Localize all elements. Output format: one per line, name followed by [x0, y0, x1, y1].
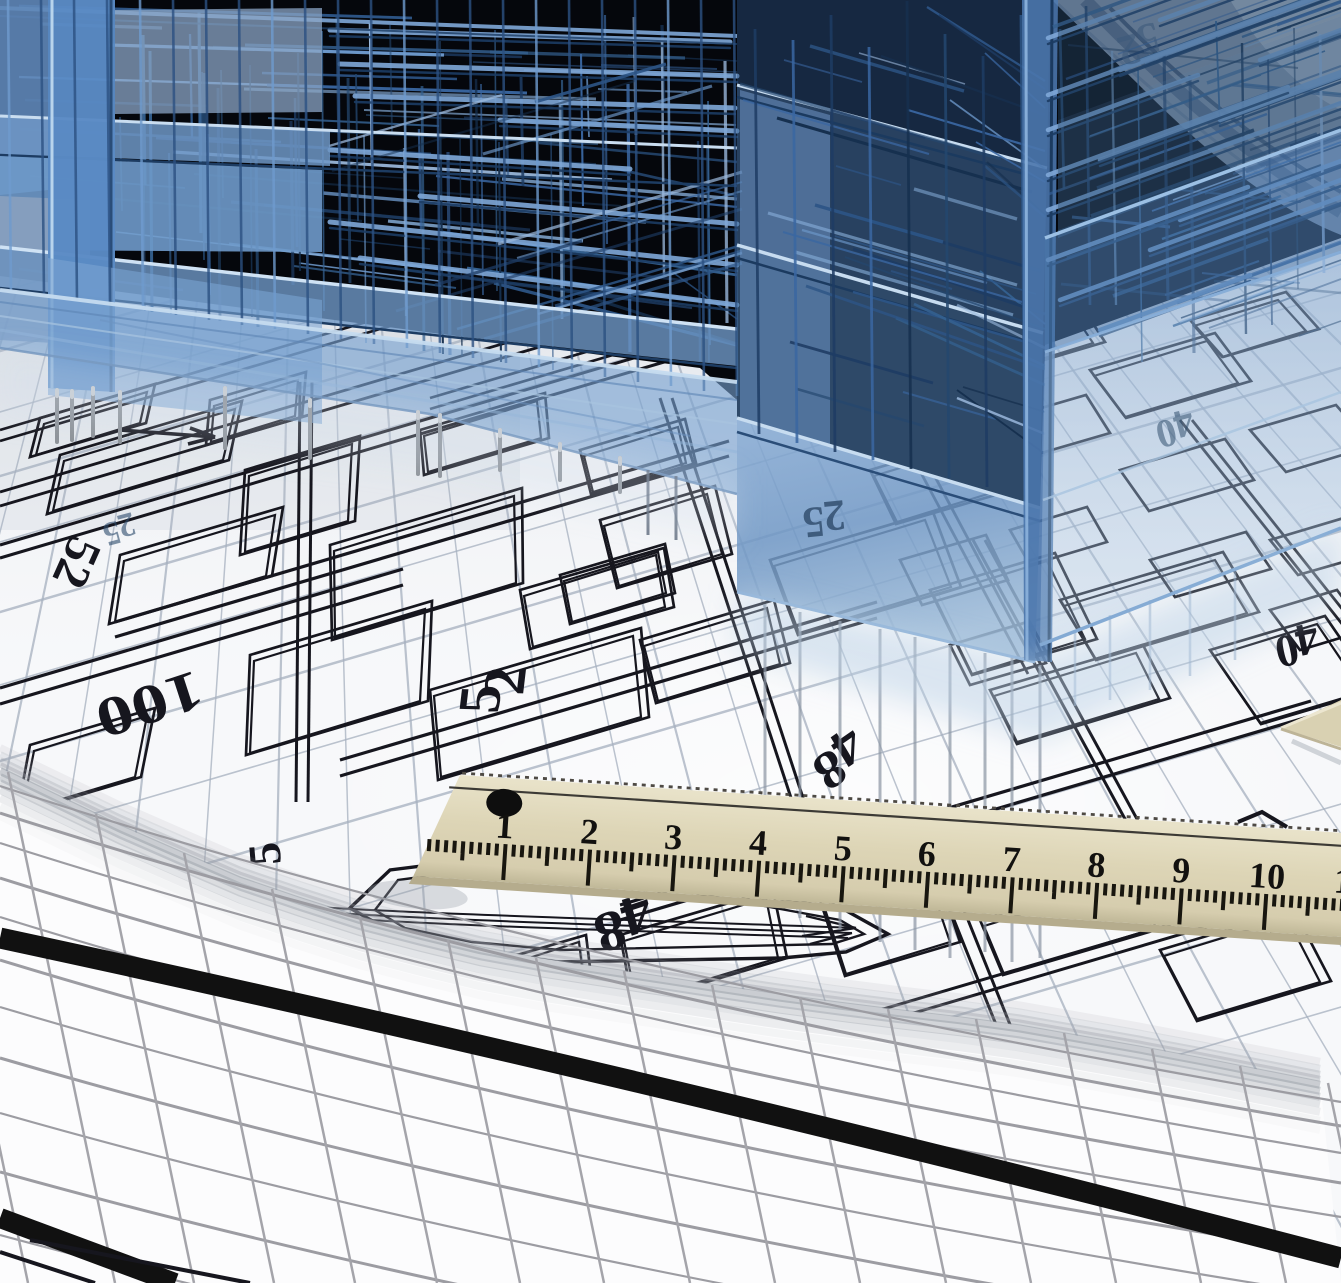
svg-text:6: 6	[917, 833, 938, 874]
svg-text:2: 2	[579, 811, 600, 852]
svg-text:4: 4	[748, 822, 769, 863]
svg-text:3: 3	[663, 817, 684, 858]
svg-text:7: 7	[1001, 839, 1022, 880]
svg-text:10: 10	[1248, 855, 1287, 897]
svg-text:9: 9	[1171, 850, 1192, 891]
svg-text:8: 8	[1086, 844, 1107, 885]
svg-text:5: 5	[833, 828, 854, 869]
svg-text:11: 11	[1333, 860, 1341, 902]
svg-text:1: 1	[494, 805, 515, 846]
